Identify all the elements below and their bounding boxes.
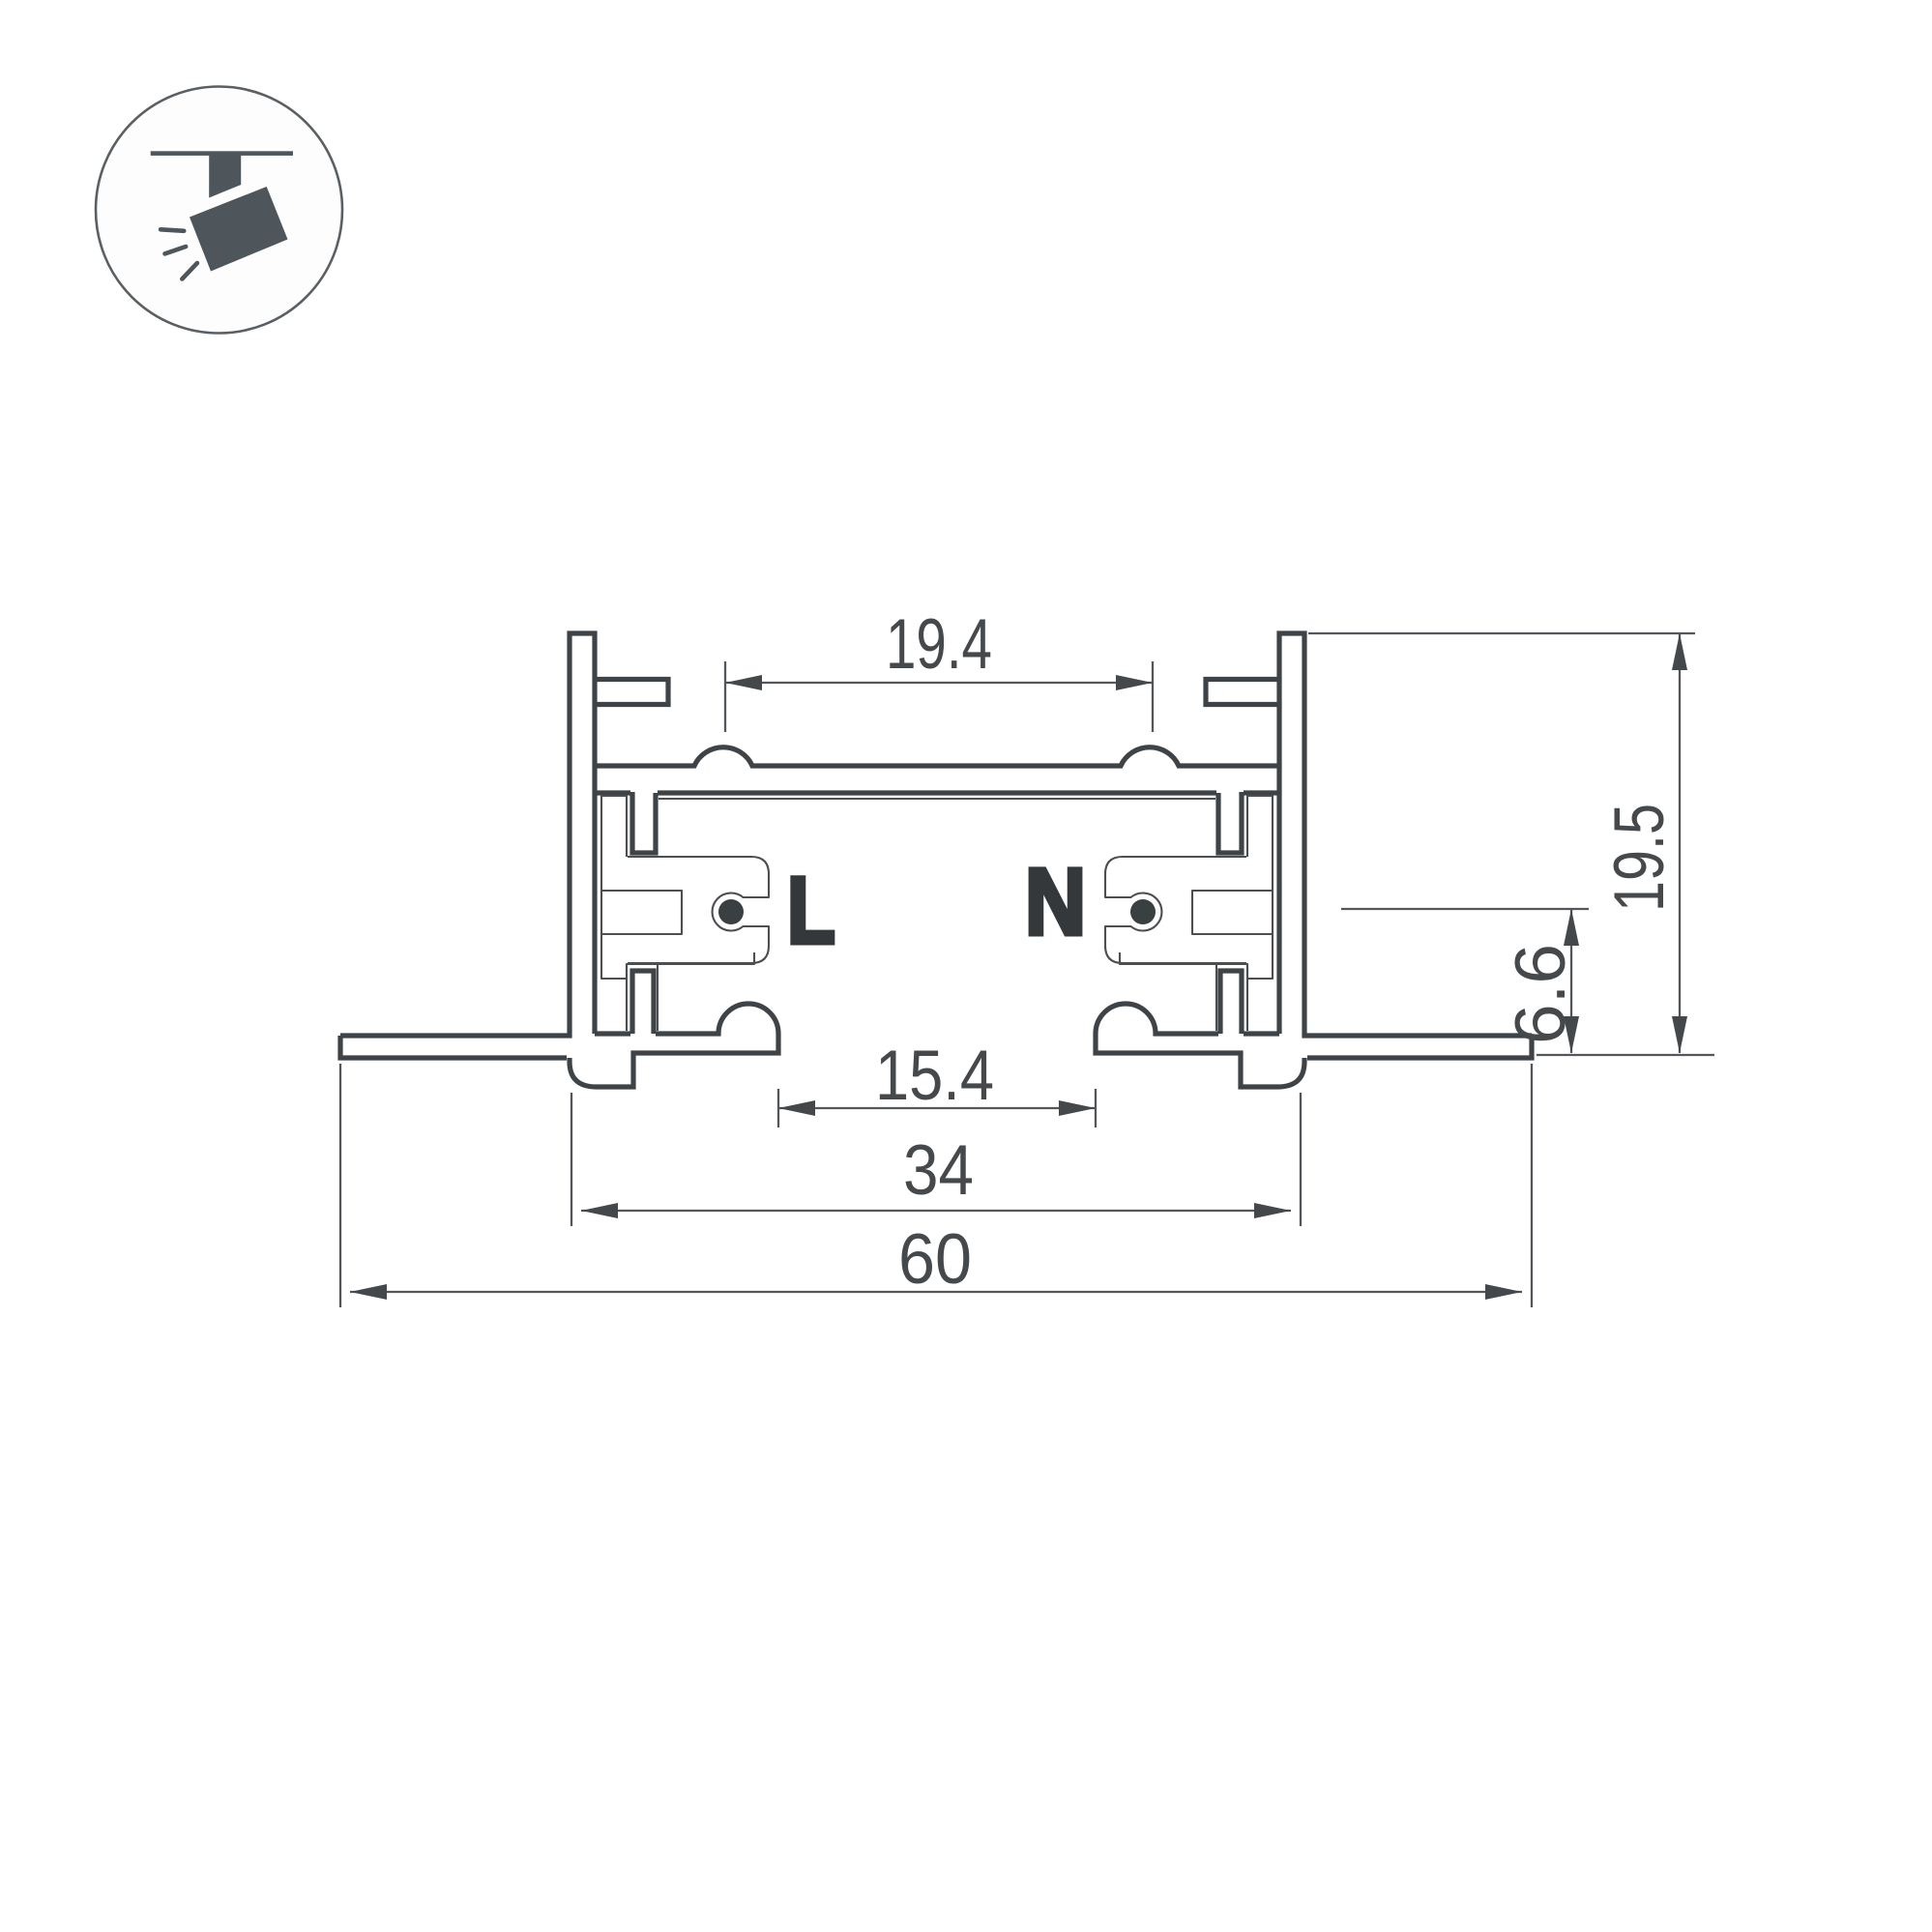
svg-text:60: 60 [898, 1220, 972, 1299]
svg-text:19.5: 19.5 [1600, 804, 1679, 912]
svg-text:34: 34 [903, 1131, 974, 1210]
svg-text:6.6: 6.6 [1502, 944, 1580, 1044]
svg-text:15.4: 15.4 [875, 1037, 994, 1115]
svg-text:L: L [787, 858, 835, 962]
svg-text:19.4: 19.4 [886, 605, 992, 684]
svg-text:N: N [1025, 849, 1086, 954]
